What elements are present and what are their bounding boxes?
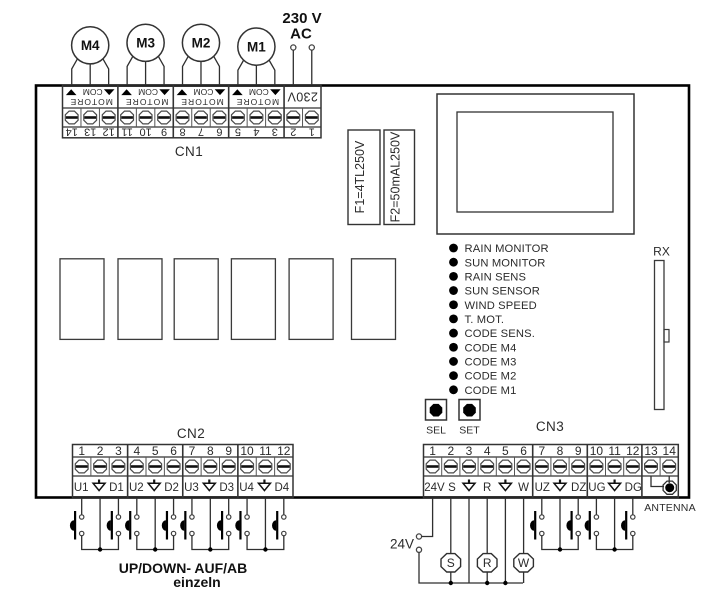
svg-text:10: 10: [590, 444, 604, 458]
svg-text:9: 9: [575, 444, 582, 458]
svg-text:10: 10: [139, 125, 151, 137]
svg-text:4: 4: [484, 444, 491, 458]
svg-text:24V: 24V: [424, 482, 445, 494]
svg-text:14: 14: [663, 444, 677, 458]
svg-text:U4: U4: [239, 482, 254, 494]
svg-text:COM: COM: [138, 87, 158, 97]
svg-text:R: R: [483, 482, 491, 494]
svg-text:DZ: DZ: [571, 482, 586, 494]
svg-text:U2: U2: [129, 482, 144, 494]
svg-text:MOTORE: MOTORE: [236, 97, 279, 107]
svg-text:W: W: [518, 482, 529, 494]
svg-text:RAIN MONITOR: RAIN MONITOR: [465, 243, 549, 255]
svg-text:SUN SENSOR: SUN SENSOR: [465, 286, 540, 298]
svg-text:MOTORE: MOTORE: [69, 97, 112, 107]
svg-text:D3: D3: [219, 482, 234, 494]
svg-text:7: 7: [538, 444, 545, 458]
svg-text:12: 12: [103, 125, 115, 137]
svg-text:7: 7: [189, 444, 196, 458]
svg-text:3: 3: [115, 444, 122, 458]
svg-text:T. MOT.: T. MOT.: [465, 314, 505, 326]
svg-text:5: 5: [235, 125, 241, 137]
svg-text:9: 9: [161, 125, 167, 137]
svg-text:13: 13: [644, 444, 658, 458]
svg-text:4: 4: [133, 444, 140, 458]
svg-text:6: 6: [520, 444, 527, 458]
svg-text:S: S: [447, 556, 455, 570]
svg-text:11: 11: [121, 125, 132, 137]
svg-text:230V: 230V: [287, 89, 318, 103]
svg-text:einzeln: einzeln: [173, 574, 220, 590]
svg-text:M4: M4: [81, 38, 100, 53]
svg-text:13: 13: [84, 125, 96, 137]
svg-text:COM: COM: [249, 87, 269, 97]
svg-text:3: 3: [466, 444, 473, 458]
svg-text:DG: DG: [625, 482, 642, 494]
svg-text:CODE M1: CODE M1: [465, 385, 517, 397]
svg-text:MOTORE: MOTORE: [125, 97, 168, 107]
svg-text:230 V: 230 V: [282, 10, 321, 27]
svg-text:8: 8: [557, 444, 564, 458]
svg-text:COM: COM: [194, 87, 214, 97]
svg-text:1: 1: [429, 444, 436, 458]
svg-text:CODE M3: CODE M3: [465, 357, 517, 369]
svg-text:D1: D1: [109, 482, 124, 494]
svg-text:F1=4TL250V: F1=4TL250V: [353, 140, 367, 213]
svg-text:UZ: UZ: [535, 482, 550, 494]
svg-text:10: 10: [240, 444, 254, 458]
svg-text:5: 5: [152, 444, 159, 458]
svg-text:1: 1: [78, 444, 85, 458]
svg-text:4: 4: [253, 125, 259, 137]
svg-text:6: 6: [170, 444, 177, 458]
svg-text:COM: COM: [83, 87, 103, 97]
svg-text:RAIN SENS: RAIN SENS: [465, 271, 527, 283]
svg-text:14: 14: [66, 125, 78, 137]
svg-text:8: 8: [179, 125, 185, 137]
svg-text:M2: M2: [192, 36, 211, 51]
svg-text:SUN MONITOR: SUN MONITOR: [465, 257, 546, 269]
svg-text:U1: U1: [74, 482, 89, 494]
svg-text:8: 8: [207, 444, 214, 458]
svg-text:12: 12: [626, 444, 640, 458]
svg-text:2: 2: [447, 444, 454, 458]
svg-text:12: 12: [277, 444, 291, 458]
svg-text:U3: U3: [184, 482, 199, 494]
svg-text:F2=50mAL250V: F2=50mAL250V: [389, 131, 403, 222]
svg-text:RX: RX: [653, 245, 670, 259]
svg-text:WIND SPEED: WIND SPEED: [465, 300, 537, 312]
svg-text:D2: D2: [164, 482, 179, 494]
svg-text:SET: SET: [459, 425, 480, 437]
svg-text:3: 3: [272, 125, 278, 137]
svg-text:D4: D4: [274, 482, 289, 494]
svg-text:6: 6: [216, 125, 222, 137]
svg-text:CODE M4: CODE M4: [465, 342, 517, 354]
svg-text:CN1: CN1: [175, 144, 203, 159]
svg-text:M3: M3: [136, 36, 155, 51]
svg-text:SEL: SEL: [426, 425, 446, 437]
svg-text:7: 7: [198, 125, 204, 137]
svg-text:CN3: CN3: [536, 419, 564, 434]
svg-text:CODE M2: CODE M2: [465, 371, 517, 383]
svg-text:11: 11: [608, 444, 621, 458]
svg-text:2: 2: [97, 444, 104, 458]
svg-text:R: R: [483, 556, 492, 570]
svg-text:CN2: CN2: [177, 426, 205, 441]
svg-text:UG: UG: [588, 482, 605, 494]
svg-text:5: 5: [502, 444, 509, 458]
svg-text:1: 1: [309, 125, 315, 137]
svg-text:W: W: [518, 556, 530, 570]
svg-text:ANTENNA: ANTENNA: [644, 502, 696, 514]
svg-text:AC: AC: [290, 26, 312, 43]
svg-text:M1: M1: [247, 39, 266, 54]
svg-text:9: 9: [225, 444, 232, 458]
svg-text:24V: 24V: [390, 537, 414, 552]
svg-text:S: S: [448, 482, 456, 494]
svg-text:11: 11: [259, 444, 272, 458]
svg-text:CODE SENS.: CODE SENS.: [465, 328, 536, 340]
svg-text:MOTORE: MOTORE: [180, 97, 223, 107]
svg-text:2: 2: [290, 125, 296, 137]
